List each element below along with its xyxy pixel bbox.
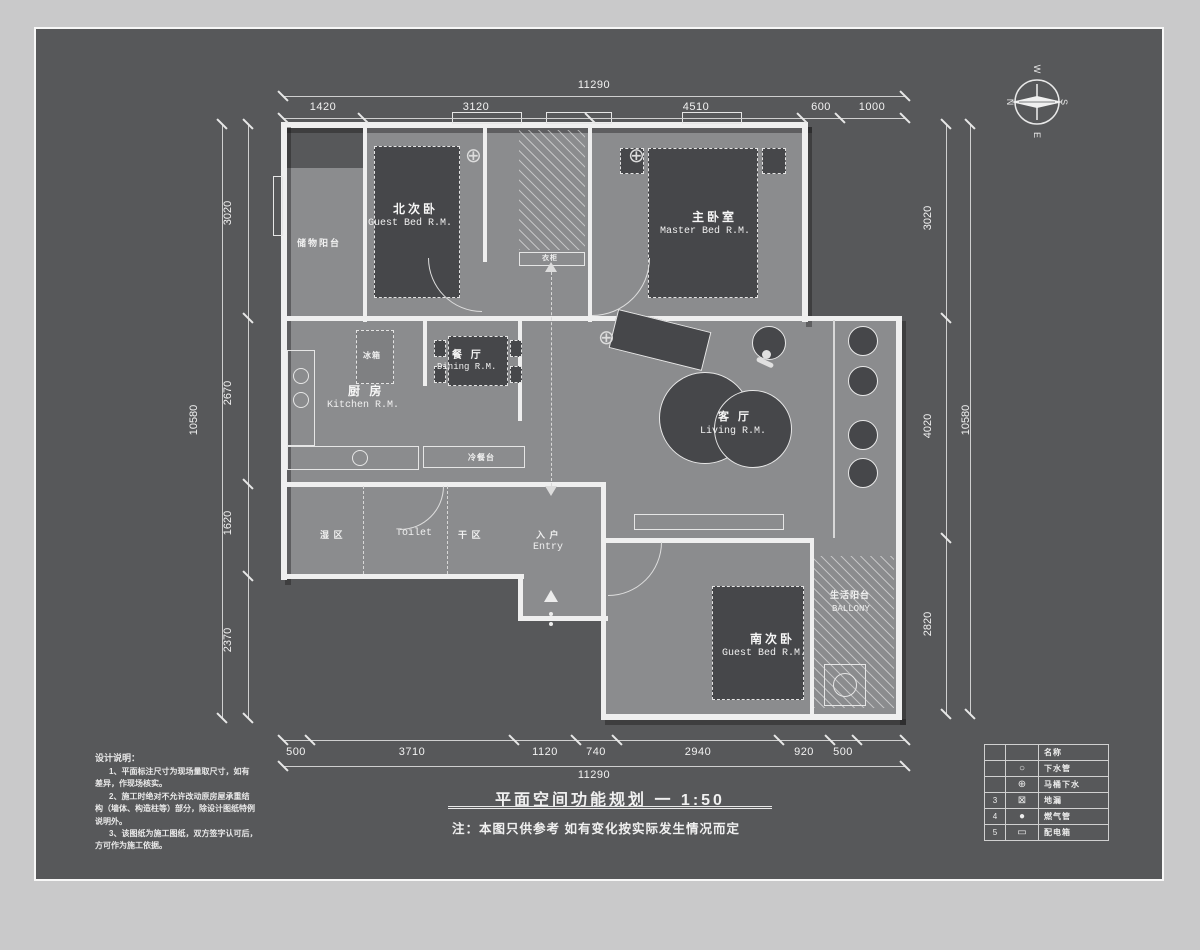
balcony-chair-symbol <box>848 366 878 396</box>
dim-left-seg: 2370 <box>222 620 234 660</box>
dim-right-overall: 10580 <box>960 396 972 444</box>
compass-north: N <box>1005 99 1015 106</box>
dim-right-seg: 3020 <box>922 198 934 238</box>
legend-no: 5 <box>985 825 1006 841</box>
wall-segment <box>423 316 427 386</box>
legend-header-row: 名称 <box>985 745 1109 761</box>
entry-arrow-dot <box>549 622 553 626</box>
label-wardrobe: 衣柜 <box>542 253 558 263</box>
dim-right-seg: 2820 <box>922 604 934 644</box>
legend-no: 4 <box>985 809 1006 825</box>
balcony-chair-symbol <box>848 420 878 450</box>
wall-segment <box>281 574 524 579</box>
room-label-north-bedroom-en: Guest Bed R.M. <box>368 218 452 229</box>
design-note-line: 差异，作现场核实。 <box>95 778 280 790</box>
dim-bottom-seg: 500 <box>286 746 306 758</box>
room-label-south-bedroom-cn: 南次卧 <box>750 630 795 647</box>
room-label-kitchen-cn: 厨 房 <box>348 382 384 399</box>
design-note-line: 3、该图纸为施工图纸，双方签字认可后， <box>95 828 280 840</box>
room-label-living-cn: 客 厅 <box>718 408 752 424</box>
dim-bottom-seg: 500 <box>833 746 853 758</box>
stove-symbol <box>352 450 368 466</box>
balcony-chair-symbol <box>848 458 878 488</box>
dimension-line <box>283 118 905 119</box>
room-label-dry-zone: 干 区 <box>458 528 482 541</box>
room-label-toilet: Toilet <box>396 528 432 539</box>
floor-plan-sheet-viewport: ⊕ ⊕ ⊕ 储物阳台 北次卧 Guest Bed R.M. 主卧室 Master… <box>0 0 1200 950</box>
wall-segment <box>601 482 606 720</box>
gas-pipe-icon: ● <box>1006 809 1039 825</box>
wall-segment <box>601 714 902 720</box>
person-figure <box>762 350 771 359</box>
zone-divider <box>447 486 448 574</box>
legend-name: 配电箱 <box>1039 825 1109 841</box>
dim-bottom-seg: 1120 <box>532 746 558 758</box>
legend-no <box>985 761 1006 777</box>
compass-south: S <box>1059 99 1069 105</box>
entry-arrow-dot <box>549 612 553 616</box>
dim-bottom-seg: 3710 <box>399 746 425 758</box>
design-notes: 设计说明： 1、平面标注尺寸为现场量取尺寸，如有 差异，作现场核实。 2、施工时… <box>95 752 280 853</box>
distribution-box-icon: ▭ <box>1006 825 1039 841</box>
wardrobe-hatch <box>519 130 585 250</box>
room-label-dining-en: Dining R.M. <box>437 362 496 372</box>
room-label-wet-zone: 湿 区 <box>320 528 344 541</box>
legend-row: ⊕ 马桶下水 <box>985 777 1109 793</box>
wall-segment <box>518 616 608 621</box>
room-living-lower <box>603 484 812 542</box>
room-label-storage-balcony: 储物阳台 <box>297 236 341 249</box>
title-underline <box>448 806 772 809</box>
room-label-entry-cn: 入 户 <box>536 528 560 541</box>
dim-left-seg: 3020 <box>222 193 234 233</box>
room-label-living-en: Living R.M. <box>700 426 766 437</box>
drawing-note: 注：本图只供参考 如有变化按实际发生情况而定 <box>452 818 740 837</box>
zone-divider <box>363 486 364 574</box>
wall-segment <box>363 122 367 322</box>
dim-top-seg: 3120 <box>463 101 489 113</box>
room-label-north-bedroom-cn: 北次卧 <box>393 200 438 217</box>
legend-row: 4 ● 燃气管 <box>985 809 1109 825</box>
legend-no <box>985 777 1006 793</box>
arrow-down-icon <box>545 486 557 496</box>
dimension-line <box>283 96 905 97</box>
dining-table-symbol <box>448 336 508 386</box>
dim-left-seg: 1620 <box>222 503 234 543</box>
room-label-life-balcony-en: BALLONY <box>832 604 870 614</box>
legend-header-name: 名称 <box>1039 745 1109 761</box>
room-label-entry-en: Entry <box>533 542 563 553</box>
dining-chair-symbol <box>434 340 446 357</box>
dim-bottom-overall: 11290 <box>578 769 610 781</box>
room-label-life-balcony-cn: 生活阳台 <box>830 588 870 601</box>
compass-east: E <box>1032 132 1042 138</box>
legend-name: 马桶下水 <box>1039 777 1109 793</box>
dim-left-seg: 2670 <box>222 373 234 413</box>
design-note-line: 1、平面标注尺寸为现场量取尺寸，如有 <box>95 766 280 778</box>
design-note-line: 构（墙体、构造柱等）部分，除设计图纸特例 <box>95 803 280 815</box>
room-label-dining-cn: 餐 厅 <box>452 346 484 361</box>
legend-name: 地漏 <box>1039 793 1109 809</box>
wall-segment <box>483 122 487 262</box>
window-symbol <box>273 176 283 236</box>
wall-segment <box>896 316 902 720</box>
entry-arrow-icon <box>544 590 558 602</box>
design-note-line: 说明外。 <box>95 816 280 828</box>
legend-name: 燃气管 <box>1039 809 1109 825</box>
dim-top-overall: 11290 <box>578 79 610 91</box>
dimension-line <box>283 766 905 767</box>
dining-chair-symbol <box>510 366 522 383</box>
label-cold-counter: 冷餐台 <box>468 452 495 463</box>
nightstand-symbol <box>762 148 786 174</box>
room-label-south-bedroom-en: Guest Bed R.M. <box>722 648 806 659</box>
washer-drum-symbol <box>833 673 857 697</box>
dimension-line <box>283 740 905 741</box>
dim-top-seg: 4510 <box>683 101 709 113</box>
wall-segment <box>802 122 808 322</box>
sink-symbol <box>293 368 309 384</box>
legend-no: 3 <box>985 793 1006 809</box>
dim-left-overall: 10580 <box>188 396 200 444</box>
dim-top-seg: 1000 <box>859 101 885 113</box>
dim-right-seg: 4020 <box>922 406 934 446</box>
tv-console-symbol <box>634 514 784 530</box>
legend-table: 名称 ○ 下水管 ⊕ 马桶下水 3 ⊠ 地漏 4 ● 燃气管 5 ▭ 配电箱 <box>984 744 1109 841</box>
compass-icon: W N S E <box>1005 60 1069 144</box>
dim-bottom-seg: 920 <box>794 746 814 758</box>
room-label-master-bedroom-en: Master Bed R.M. <box>660 226 750 237</box>
label-fridge: 冰箱 <box>363 350 381 361</box>
wall-glass-divider <box>833 320 835 538</box>
dimension-line <box>248 124 249 718</box>
legend-name: 下水管 <box>1039 761 1109 777</box>
legend-row: 5 ▭ 配电箱 <box>985 825 1109 841</box>
legend-header-symbol <box>1006 745 1039 761</box>
room-label-master-bedroom-cn: 主卧室 <box>692 208 737 225</box>
dim-top-seg: 600 <box>811 101 831 113</box>
floor-drain-icon: ⊠ <box>1006 793 1039 809</box>
design-note-line: 方可作为施工依据。 <box>95 840 280 852</box>
legend-row: ○ 下水管 <box>985 761 1109 777</box>
sink-symbol <box>293 392 309 408</box>
light-symbol-icon: ⊕ <box>628 146 645 166</box>
circulation-axis <box>551 272 552 486</box>
dim-top-seg: 1420 <box>310 101 336 113</box>
dining-chair-symbol <box>510 340 522 357</box>
dimension-line <box>946 124 947 714</box>
compass-west: W <box>1032 65 1042 74</box>
light-symbol-icon: ⊕ <box>465 146 482 166</box>
legend-row: 3 ⊠ 地漏 <box>985 793 1109 809</box>
arrow-up-icon <box>545 262 557 272</box>
dim-bottom-seg: 2940 <box>685 746 711 758</box>
light-symbol-icon: ⊕ <box>598 328 615 348</box>
drain-pipe-icon: ○ <box>1006 761 1039 777</box>
room-label-kitchen-en: Kitchen R.M. <box>327 400 399 411</box>
wall-segment <box>518 574 523 620</box>
design-notes-title: 设计说明： <box>95 752 280 766</box>
balcony-chair-symbol <box>848 326 878 356</box>
toilet-drain-icon: ⊕ <box>1006 777 1039 793</box>
dim-bottom-seg: 740 <box>586 746 606 758</box>
design-note-line: 2、施工时绝对不允许改动原房屋承重结 <box>95 791 280 803</box>
legend-header-no <box>985 745 1006 761</box>
